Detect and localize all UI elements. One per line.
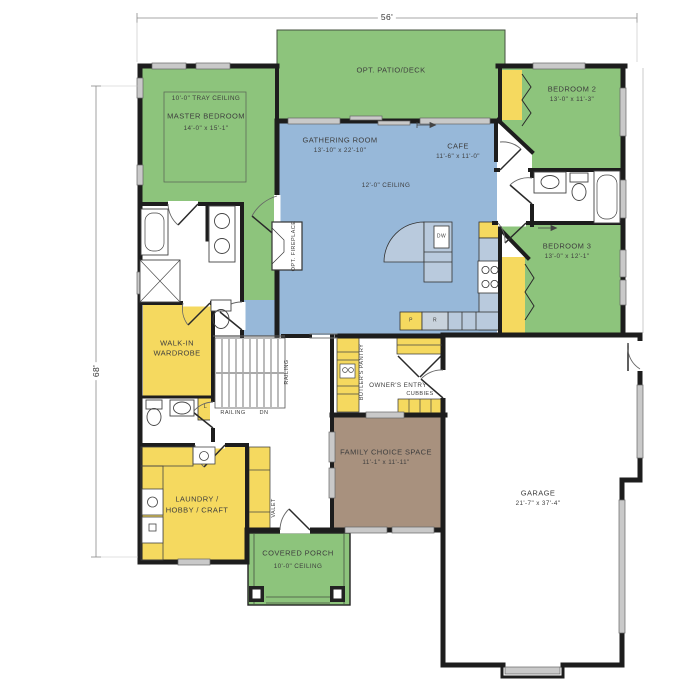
washer [142,489,163,515]
powder-toilet [146,400,162,409]
gathering-ceiling-label: 12'-0" CEILING [362,183,411,189]
floor-plan-drawing [0,0,700,700]
master-label: MASTER BEDROOM [167,112,245,120]
bedroom2-dims: 13'-0" x 11'-3" [550,97,594,103]
dishwasher-label: DW [437,235,446,240]
cafe-label: CAFE [447,142,469,150]
patio-deck-area [277,30,505,121]
floor-plan: 56' 68' OPT. PATIO/DECK 10'-0" TRAY CEIL… [0,0,700,700]
master-ceiling-label: 10'-0" TRAY CEILING [172,96,240,102]
owners-entry-label: OWNER'S ENTRY [369,383,427,389]
butlers-pantry-label: BUTLER'S PANTRY [360,344,366,401]
porch-label: COVERED PORCH [262,549,333,557]
staircase [213,336,285,408]
garage-dims: 21'-7" x 37'-4" [516,501,561,507]
garage-door [505,667,560,674]
gathering-pass-area [242,300,277,336]
refrigerator-label: R [433,319,437,324]
garage-label: GARAGE [521,489,556,497]
master-dims: 14'-0" x 15'-1" [184,126,229,132]
porch-ceiling-label: 10'-0" CEILING [274,564,323,570]
wardrobe-label-line1: WALK-IN [160,339,194,347]
gathering-label: GATHERING ROOM [302,136,377,144]
cubbies-label: CUBBIES [406,392,433,398]
railing-label: RAILING [220,411,245,417]
fireplace-label: OPT. FIREPLACE [292,221,298,272]
cafe-dims: 11'-6" x 11'-0" [436,154,480,160]
bedroom3-dims: 13'-0" x 12'-1" [545,254,590,260]
linen-label: L [204,405,208,411]
dimension-height: 68' [92,362,101,380]
valet-label: VALET [272,498,278,517]
bath2-toilet [570,173,588,182]
stairs-down-label: DN [260,411,269,417]
laundry-label-line1: LAUNDRY / [175,495,218,503]
wardrobe-label-line2: WARDROBE [153,349,200,357]
bedroom2-closet [500,70,522,120]
railing-vertical-label: RAILING [285,359,291,384]
master-bedroom-area [140,66,277,206]
patio-label: OPT. PATIO/DECK [356,66,425,74]
dryer [142,517,163,543]
bedroom3-label: BEDROOM 3 [543,242,592,250]
entry-bench [397,337,442,354]
laundry-label-line2: HOBBY / CRAFT [166,506,229,514]
bath2-tub [594,171,620,223]
bedroom2-label: BEDROOM 2 [548,85,597,93]
family-choice-area [332,415,445,530]
valet-closet [249,447,270,530]
gathering-dims: 13'-10" x 22'-10" [314,148,367,154]
bedroom3-closet [502,257,525,335]
family-choice-label: FAMILY CHOICE SPACE [340,448,432,456]
dimension-width: 56' [378,13,396,22]
pantry-label: P [409,319,413,324]
family-choice-dims: 11'-1" x 11'-11" [362,460,409,466]
